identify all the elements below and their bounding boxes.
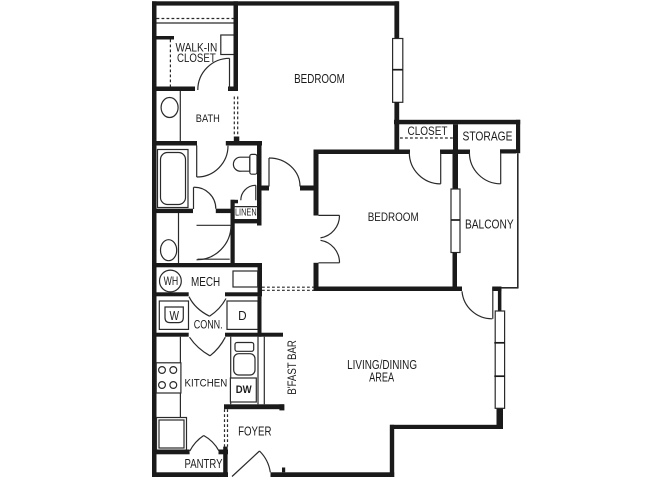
svg-text:CONN.: CONN. <box>194 317 223 331</box>
svg-text:DW: DW <box>236 384 252 396</box>
svg-text:STORAGE: STORAGE <box>463 129 513 144</box>
svg-text:D: D <box>238 308 247 323</box>
svg-text:BEDROOM: BEDROOM <box>294 71 345 86</box>
svg-text:CLOSET: CLOSET <box>408 124 448 138</box>
svg-text:PANTRY: PANTRY <box>185 456 223 471</box>
svg-text:B'FAST BAR: B'FAST BAR <box>285 340 299 395</box>
svg-text:BEDROOM: BEDROOM <box>368 210 419 224</box>
svg-text:W: W <box>170 308 180 323</box>
svg-text:KITCHEN: KITCHEN <box>185 378 228 390</box>
svg-text:BALCONY: BALCONY <box>465 216 514 231</box>
svg-text:BATH: BATH <box>196 113 220 125</box>
svg-text:AREA: AREA <box>369 370 394 385</box>
svg-text:MECH: MECH <box>191 274 220 289</box>
svg-text:WH: WH <box>164 275 179 288</box>
svg-text:CLOSET: CLOSET <box>177 51 216 65</box>
svg-text:LINEN: LINEN <box>235 207 257 218</box>
svg-text:FOYER: FOYER <box>238 424 271 438</box>
